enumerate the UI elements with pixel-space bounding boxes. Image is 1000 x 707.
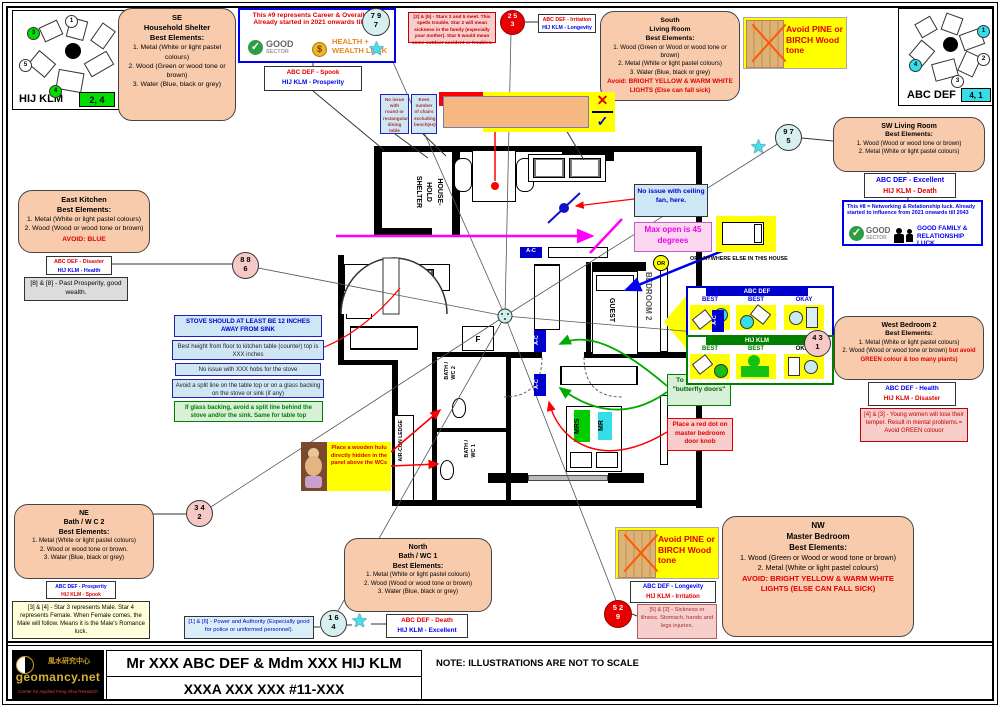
hob-unit	[569, 158, 601, 178]
room-item: 3. Water (Blue, black or grey)	[20, 554, 148, 562]
room-item: 3. Water (Blue, black or grey)	[350, 588, 486, 596]
kitchen-counter	[344, 264, 450, 291]
circle-bottom: 7	[363, 21, 389, 30]
compass-center-arrow	[65, 43, 81, 59]
bed-option-label: BEST	[690, 346, 730, 352]
room-item: 2. Wood (Wood or wood tone or brown)	[350, 580, 486, 588]
circle-bottom: 5	[776, 137, 801, 146]
bed-shape	[788, 357, 800, 376]
dining-table	[472, 150, 516, 202]
good-label: GOOD	[266, 39, 294, 49]
room-avoid: AVOID: BLUE	[24, 235, 144, 244]
compass-abc-def: 1 2 3 4 ABC DEF 4, 1	[898, 8, 994, 106]
room-title: NE	[20, 509, 148, 518]
room-item: 3. Water (Blue, black or grey)	[606, 69, 734, 77]
window-slider	[528, 475, 608, 481]
compass-point-4: 4	[49, 85, 62, 98]
pair-line-abc: ABC DEF - Spook	[265, 68, 361, 78]
wall-bedroom2	[586, 262, 591, 354]
dining-table-note: No issue with round or rectangular dinin…	[380, 94, 409, 134]
wall-bath-left	[432, 352, 437, 502]
wood-texture-icon	[618, 530, 656, 578]
split-line-note: Avoid a split line on the table top or o…	[172, 379, 324, 398]
room-title: East Kitchen	[24, 195, 144, 205]
networking-luck-text: This #8 = Networking & Relationship luck…	[844, 202, 981, 216]
pair-label-excellent: ABC DEF - Excellent HIJ KLM - Death	[864, 173, 956, 198]
compass-point-5: 5	[19, 59, 32, 72]
position-dot	[789, 311, 803, 325]
compass-right-badge: 4, 1	[961, 88, 991, 102]
room-title: Best Elements:	[839, 131, 979, 140]
owners-title: Mr XXX ABC DEF & Mdm XXX HIJ KLM	[107, 651, 421, 677]
avoid-pine-note-bottom: Avoid PINE or BIRCH Wood tone	[615, 527, 719, 579]
sector-circle-431: 4 31	[804, 330, 831, 357]
master-bed-pillow	[596, 452, 618, 468]
yellow-arrow-icon	[664, 296, 686, 348]
logo-tagline: Center for Applied Feng Shui Research	[12, 689, 104, 694]
pair-line-hij: HIJ KLM - Death	[865, 186, 955, 197]
suggested-bed-highlight	[716, 216, 776, 252]
pair-line-abc: ABC DEF - Irritation	[539, 16, 595, 24]
bed-panel-abc-header: ABC DEF	[706, 288, 808, 296]
avoid-pine-note-top: Avoid PINE or BIRCH Wood tone	[743, 17, 847, 69]
dining-chair	[454, 158, 472, 192]
networking-luck-legend: This #8 = Networking & Relationship luck…	[842, 200, 983, 246]
household-shelter-label: HOUSE- HOLD SHELTER	[384, 160, 444, 224]
circle-bottom: 3	[501, 21, 524, 29]
avoid-pine-text: Avoid PINE or BIRCH Wood tone	[658, 534, 718, 566]
pair-label-prosperity: ABC DEF - Prosperity HIJ KLM - Spook	[46, 581, 116, 599]
compass-furniture-shape	[39, 20, 64, 43]
room-title: South	[606, 16, 734, 25]
fridge: F	[462, 326, 494, 351]
room-title: Living Room	[606, 25, 734, 34]
wall-step	[338, 360, 398, 365]
avoid-pine-text: Avoid PINE or BIRCH Wood tone	[786, 24, 846, 56]
report-title-block: Mr XXX ABC DEF & Mdm XXX HIJ KLM XXXA XX…	[106, 650, 422, 700]
bed-option-label: BEST	[736, 297, 776, 303]
compass-point-4: 4	[909, 59, 922, 72]
romance-luck-note: [3] & [4] - Star 3 represents Male. Star…	[12, 601, 150, 639]
pair-label-spook: ABC DEF - Spook HIJ KLM - Prosperity	[264, 66, 362, 91]
bed-option-tile	[690, 305, 730, 330]
guest-bed-pillow	[596, 275, 634, 291]
family-icon-body	[894, 234, 904, 243]
wall-bath-top	[432, 352, 510, 357]
good-sector-check-icon: ✓	[248, 40, 263, 55]
room-box-nw: NW Master Bedroom Best Elements: 1. Wood…	[722, 516, 914, 637]
logo-site-name: geomancy.net	[12, 670, 104, 684]
bed-option-label: BEST	[690, 297, 730, 303]
room-title: Best Elements:	[124, 33, 230, 43]
window-ledge-strip	[548, 247, 608, 258]
room-item: 3. Water (Blue, black or grey)	[124, 80, 230, 89]
pair-label-disaster: ABC DEF - Disaster HIJ KLM - Health	[46, 256, 112, 275]
pair-line-hij: HIJ KLM - Spook	[47, 591, 115, 599]
compass-point-3: 3	[951, 75, 964, 88]
logo-chinese-text: 風水研究中心	[38, 656, 100, 666]
feng-shui-floorplan-page: 3 1 5 4 HIJ KLM 2, 4 1 2 3 4 ABC DEF 4, …	[0, 0, 1000, 707]
address-title: XXXA XXX XXX #11-XXX	[107, 677, 421, 701]
bed-option-tile	[784, 354, 824, 379]
geomancy-logo: 風水研究中心 geomancy.net Center for Applied F…	[12, 650, 104, 700]
bench	[350, 326, 418, 350]
room-title: Bath / WC 1	[350, 552, 486, 561]
max-open-note: Max open is 45 degrees	[634, 222, 712, 252]
room-item: 2. Wood or wood tone or brown.	[20, 546, 148, 554]
wall-master-top-left	[506, 352, 542, 358]
room-title: North	[350, 543, 486, 552]
family-icon-child-body	[906, 234, 913, 242]
washing-machine: W	[346, 293, 372, 319]
circle-bottom: 9	[605, 613, 631, 622]
circle-bottom: 6	[233, 265, 258, 274]
sector-circle-529: 5 29	[604, 600, 632, 628]
position-dot	[740, 315, 754, 329]
room-title: SE	[124, 13, 230, 23]
room-title: Best Elements:	[350, 562, 486, 571]
pair-line-abc: ABC DEF - Health	[869, 384, 955, 394]
room-box-sw: SW Living Room Best Elements: 1. Wood (W…	[833, 117, 985, 172]
pair-line-hij: HIJ KLM - Disaster	[869, 394, 955, 404]
room-title: Household Shelter	[124, 23, 230, 33]
money-bag-icon: $	[312, 42, 327, 57]
or-circle: OR	[653, 255, 669, 271]
sector-circle-886: 8 86	[232, 252, 259, 279]
circle-bottom: 1	[805, 343, 830, 352]
room-title: Best Elements:	[840, 330, 978, 339]
position-dot	[714, 364, 728, 378]
pair-line-hij: HIJ KLM - Longevity	[539, 24, 595, 32]
hobs-note: No issue with XXX hobs for the stove	[175, 363, 321, 376]
bedroom2-label: BEDROOM 2	[644, 272, 653, 320]
compass-point-1: 1	[977, 25, 990, 38]
room-title: West Bedroom 2	[840, 321, 978, 330]
sector-circle-975: 9 75	[775, 124, 802, 151]
room-avoid: Avoid: BRIGHT YELLOW & WARM WHITE LIGHTS…	[606, 78, 734, 95]
room-title: Best Elements:	[20, 528, 148, 537]
sector-label: SECTOR	[866, 235, 887, 241]
room-item-part: 2. Wood (Wood or wood tone or brown)	[842, 348, 949, 354]
bed-pillow	[754, 224, 762, 243]
wall-master-window-left	[488, 473, 528, 483]
circle-bottom: 2	[187, 513, 212, 522]
wall-bottom	[392, 500, 702, 506]
room-title: Best Elements:	[728, 543, 908, 554]
red-dot-note: Place a red dot on master bedroom door k…	[667, 418, 733, 451]
guest-bed-label: GUEST	[608, 298, 615, 322]
bed-option-tile	[690, 354, 730, 379]
sickness-note: [5] & [2] - Sickness or illness. Stomach…	[637, 604, 717, 639]
ac-label: A-C	[520, 247, 542, 258]
room-item: 1. Wood (Wood or wood tone or brown)	[839, 140, 979, 148]
stove	[408, 269, 434, 287]
pair-line-abc: ABC DEF - Excellent	[865, 175, 955, 186]
bed-option-label: BEST	[736, 346, 776, 352]
pair-label-death: ABC DEF - Death HIJ KLM - Excellent	[386, 614, 468, 638]
bed-option-label: OKAY	[784, 297, 824, 303]
pair-line-abc: ABC DEF - Disaster	[47, 258, 111, 267]
footer-divider-thin	[6, 645, 994, 646]
room-item: 2. Wood (Green or wood tone or brown)	[124, 62, 230, 80]
ac-label: A-C	[712, 310, 724, 332]
bedroom2-wardrobe	[534, 264, 560, 330]
sector-label: SECTOR	[266, 49, 289, 55]
pair-line-abc: ABC DEF - Longevity	[631, 583, 715, 593]
circle-top: 2 5	[501, 13, 524, 21]
compass-right-label: ABC DEF	[907, 89, 956, 101]
shelter-wall-bottom	[374, 228, 432, 236]
pair-line-hij: HIJ KLM - Excellent	[387, 626, 467, 636]
room-title: NW	[728, 521, 908, 532]
glass-backing-note: If glass backing, avoid a split line beh…	[174, 401, 323, 422]
compass-center-arrow	[943, 37, 958, 52]
wood-texture-icon	[746, 20, 784, 68]
compass-furniture-shape	[90, 22, 116, 49]
bed-shape	[692, 354, 713, 375]
family-luck-label: GOOD FAMILY & RELATIONSHIP LUCK	[917, 225, 981, 248]
ceiling-fan-note: No issue with ceiling fan, here.	[634, 184, 708, 217]
shelter-wall-left	[374, 146, 382, 236]
not-to-scale-note: NOTE: ILLUSTRATIONS ARE NOT TO SCALE	[436, 658, 639, 669]
aircon-ledge-label: AIR-CON LEDGE	[398, 420, 404, 462]
room-box-north: North Bath / WC 1 Best Elements: 1. Meta…	[344, 538, 492, 612]
compass-point-2: 2	[977, 53, 990, 66]
room-item: 1. Wood (Green or Wood or wood tone or b…	[728, 553, 908, 563]
room-item: 1. Metal (White or light pastel colours)	[20, 537, 148, 545]
room-box-south: South Living Room Best Elements: 1. Wood…	[600, 11, 740, 101]
star-icon: ★	[368, 40, 385, 59]
good-sector-check-icon: ✓	[849, 226, 864, 241]
pair-line-hij: HIJ KLM - Health	[47, 267, 111, 276]
bed-option-tile	[736, 354, 776, 379]
hulu-gourd-photo	[301, 442, 327, 491]
bed-shape	[692, 309, 713, 330]
room-box-se: SE Household Shelter Best Elements: 1. M…	[118, 8, 236, 121]
star-icon: ★	[750, 138, 767, 157]
wall-above-guest-bed	[592, 262, 646, 271]
room-item: 1. Metal (White or light pastel colours)	[24, 215, 144, 224]
bath-wc2-label: BATH / WC 2	[444, 362, 458, 380]
mr-label: MR	[598, 412, 612, 440]
room-item: 2. Wood (Wood or wood tone or brown) but…	[840, 347, 978, 363]
sector-circle-164: 1 64	[320, 610, 347, 637]
hob-unit	[533, 158, 565, 178]
past-prosperity-note: [8] & [8] - Past Prosperity, good wealth…	[24, 277, 128, 301]
counter-height-note: Best height from floor to kitchen table …	[172, 340, 324, 360]
position-dot	[804, 360, 818, 374]
compass-furniture-shape	[84, 51, 115, 78]
wall-bath-divider	[432, 428, 510, 432]
compass-point-1: 1	[65, 15, 78, 28]
wall-master-window-right	[608, 473, 644, 483]
compass-furniture-shape	[914, 16, 938, 39]
room-title: SW Living Room	[839, 122, 979, 131]
room-item: 2. Metal (White or light pastel colours)	[728, 563, 908, 573]
sink	[381, 271, 395, 285]
pair-line-abc: ABC DEF - Prosperity	[47, 583, 115, 591]
room-item: 2. Metal (White or light pastel colours)	[606, 60, 734, 68]
room-title: Bath / W C 2	[20, 518, 148, 527]
or-anywhere-label: OR ANYWHERE ELSE IN THIS HOUSE	[690, 256, 790, 262]
bed-panel-hij-header: HIJ KLM	[706, 337, 808, 345]
pair-line-hij: HIJ KLM - Irritation	[631, 593, 715, 603]
room-item: 2. Wood (Wood or wood tone or brown)	[24, 224, 144, 233]
room-title: Best Elements:	[24, 205, 144, 215]
room-box-east: East Kitchen Best Elements: 1. Metal (Wh…	[18, 190, 150, 253]
person-body	[741, 366, 769, 377]
table-colour-swatch	[443, 96, 589, 128]
ac-label: A-C	[534, 374, 546, 396]
compass-furniture-shape	[940, 12, 963, 35]
pair-label-irritation: ABC DEF - Irritation HIJ KLM - Longevity	[538, 14, 596, 33]
pair-line-hij: HIJ KLM - Prosperity	[265, 78, 361, 88]
room-item: 1. Metal (White or light pastel colours)	[124, 43, 230, 61]
room-item: 1. Wood (Green or Wood or wood tone or b…	[606, 44, 734, 61]
room-box-ne: NE Bath / W C 2 Best Elements: 1. Metal …	[14, 504, 154, 579]
sector-circle-342: 3 42	[186, 500, 213, 527]
compass-point-3: 3	[27, 27, 40, 40]
power-authority-note: [1] & [6] - Power and Authority (Especia…	[184, 616, 314, 639]
master-bed-pillow	[570, 452, 592, 468]
room-title: Master Bedroom	[728, 532, 908, 543]
master-wardrobe	[560, 366, 638, 385]
compass-left-badge: 2, 4	[79, 92, 115, 107]
sector-circle-797: 7 97	[362, 8, 390, 36]
pair-label-health: ABC DEF - Health HIJ KLM - Disaster	[868, 382, 956, 406]
chairs-note: Even number of chairs excluding bench(es…	[411, 94, 437, 134]
pair-label-longevity: ABC DEF - Longevity HIJ KLM - Irritation	[630, 581, 716, 603]
pair-line-abc: ABC DEF - Death	[387, 616, 467, 626]
bed-option-tile	[736, 305, 776, 330]
stars-2-5-note: [2] & [5] - Stars 2 and 5 meet. This spe…	[408, 12, 496, 43]
compass-furniture-shape	[28, 50, 56, 78]
hulu-hand	[305, 476, 322, 488]
toilet-wc2	[452, 398, 466, 418]
ac-label: A-C	[534, 330, 546, 352]
good-label: GOOD	[866, 226, 890, 235]
bath-wc1-label: BATH / WC 1	[464, 440, 478, 458]
bed-shape	[806, 307, 818, 328]
bad-cross-icon: ✕	[592, 92, 613, 111]
footer-divider	[6, 641, 994, 643]
bed-option-tile	[784, 305, 824, 330]
star-icon: ★	[351, 612, 368, 631]
hulu-note: Place a wooden hulu directly hidden in t…	[327, 442, 391, 491]
circle-bottom: 4	[321, 623, 346, 632]
aircon-ledge	[394, 415, 414, 501]
good-tick-icon: ✓	[592, 113, 613, 131]
room-item: 1. Metal (White or light pastel colours)	[840, 339, 978, 347]
stove-distance-note: STOVE SHOULD AT LEAST BE 12 INCHES AWAY …	[174, 315, 322, 337]
toilet-wc1	[440, 460, 454, 480]
temper-note: [4] & [3] - Young women will lose their …	[860, 408, 968, 442]
room-item: 1. Metal (White or light pastel colours)	[350, 571, 486, 579]
wall-top	[374, 146, 702, 152]
sector-circle-253: 2 53	[500, 10, 525, 35]
room-box-west: West Bedroom 2 Best Elements: 1. Metal (…	[834, 316, 984, 380]
room-item: 2. Metal (White or light pastel colours)	[839, 148, 979, 156]
room-title: Best Elements:	[606, 34, 734, 43]
hulu-bottom	[305, 456, 322, 476]
mrs-label: MRS	[574, 410, 590, 442]
room-avoid: AVOID: BRIGHT YELLOW & WARM WHITE LIGHTS…	[728, 574, 908, 595]
